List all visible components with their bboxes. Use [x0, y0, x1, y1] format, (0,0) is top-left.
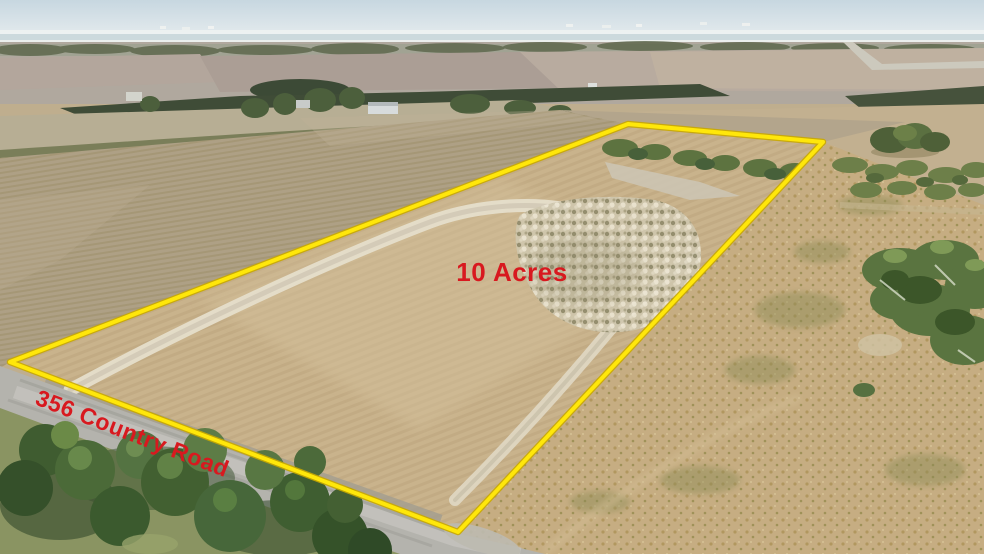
- farm-house: [126, 92, 142, 101]
- acreage-label: 10 Acres: [456, 257, 567, 287]
- sky: [0, 0, 984, 43]
- barn-roof-ridge: [368, 102, 398, 106]
- grass-gap: [122, 534, 178, 554]
- aerial-photo-canvas: 10 Acres 356 Country Road: [0, 0, 984, 554]
- aerial-photo: 10 Acres 356 Country Road: [0, 0, 984, 554]
- farm-shed: [296, 100, 310, 108]
